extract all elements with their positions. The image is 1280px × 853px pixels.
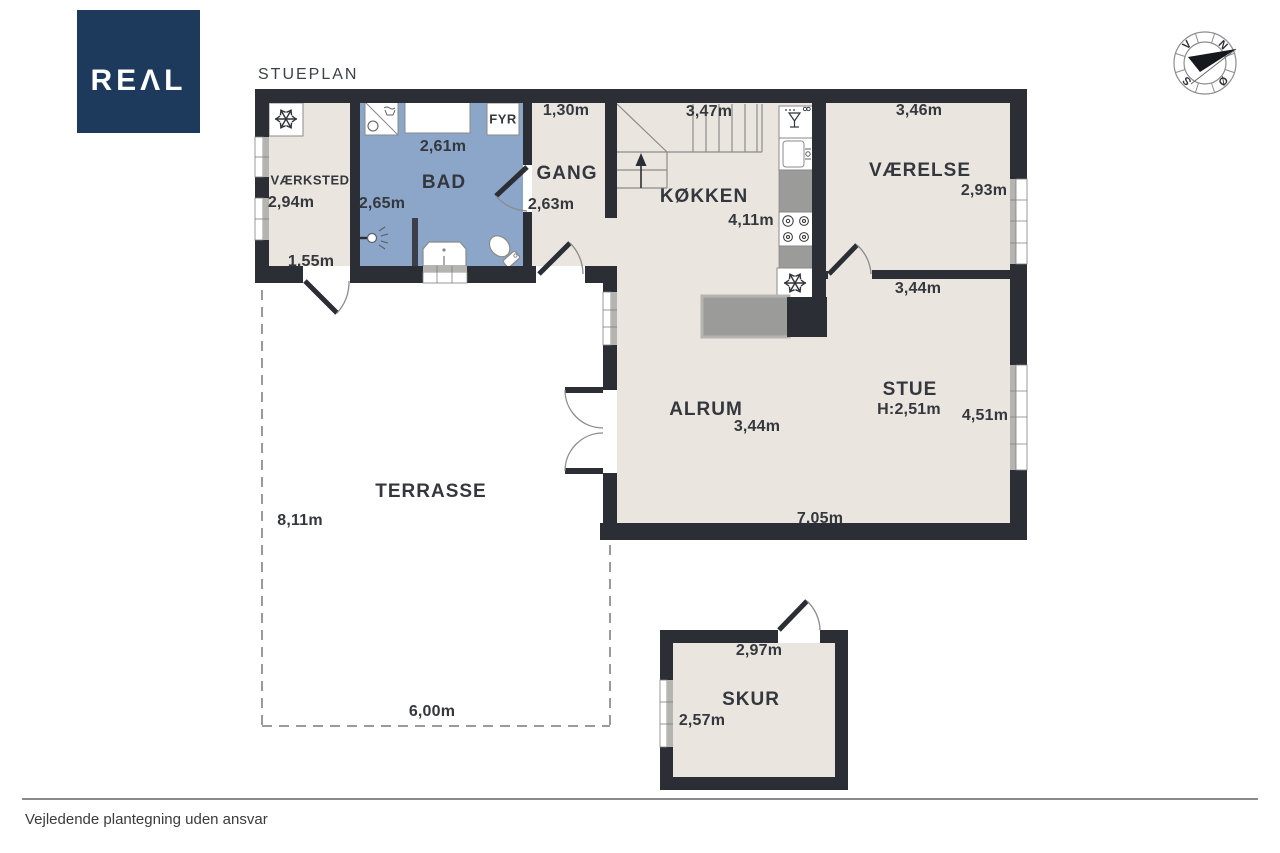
compass-north-label: N bbox=[1216, 38, 1230, 52]
window bbox=[1010, 365, 1027, 470]
shower-partition bbox=[412, 218, 418, 270]
terrasse-outline bbox=[262, 290, 610, 726]
dishwasher-icon bbox=[779, 106, 813, 138]
vaerksted-freezer-icon bbox=[269, 103, 303, 136]
window bbox=[255, 137, 269, 177]
footer-divider bbox=[22, 798, 1258, 800]
compass-east-label: Ø bbox=[1215, 73, 1230, 88]
gang-koekken-floor bbox=[532, 103, 812, 266]
skur-floor bbox=[673, 643, 835, 777]
fyr-box bbox=[487, 103, 519, 135]
kitchen-sink-icon bbox=[779, 138, 813, 170]
stove-icon bbox=[779, 212, 813, 246]
washing-machine-icon bbox=[365, 102, 398, 135]
window bbox=[255, 198, 269, 240]
kitchen-island-counter bbox=[702, 296, 789, 337]
floorplan-page: REΛL STUEPLAN bbox=[0, 0, 1280, 853]
door bbox=[305, 281, 349, 313]
window bbox=[423, 266, 467, 283]
room-floors bbox=[269, 103, 1010, 777]
disclaimer-text: Vejledende plantegning uden ansvar bbox=[25, 811, 268, 828]
window bbox=[660, 680, 673, 747]
freezer-icon bbox=[777, 268, 813, 299]
bath-counter bbox=[405, 102, 470, 133]
window bbox=[1010, 179, 1027, 264]
compass-south-label: S bbox=[1180, 74, 1194, 88]
window bbox=[603, 292, 617, 345]
floorplan-drawing: N Ø S V bbox=[0, 0, 1280, 853]
compass-needle-icon bbox=[1188, 49, 1236, 84]
compass-rose: N Ø S V bbox=[1174, 32, 1236, 94]
compass-west-label: V bbox=[1180, 38, 1194, 52]
door bbox=[779, 601, 820, 630]
sink-icon bbox=[423, 242, 466, 266]
french-doors bbox=[565, 390, 603, 471]
kitchen-counter bbox=[779, 170, 813, 212]
kitchen-counter bbox=[779, 246, 813, 268]
